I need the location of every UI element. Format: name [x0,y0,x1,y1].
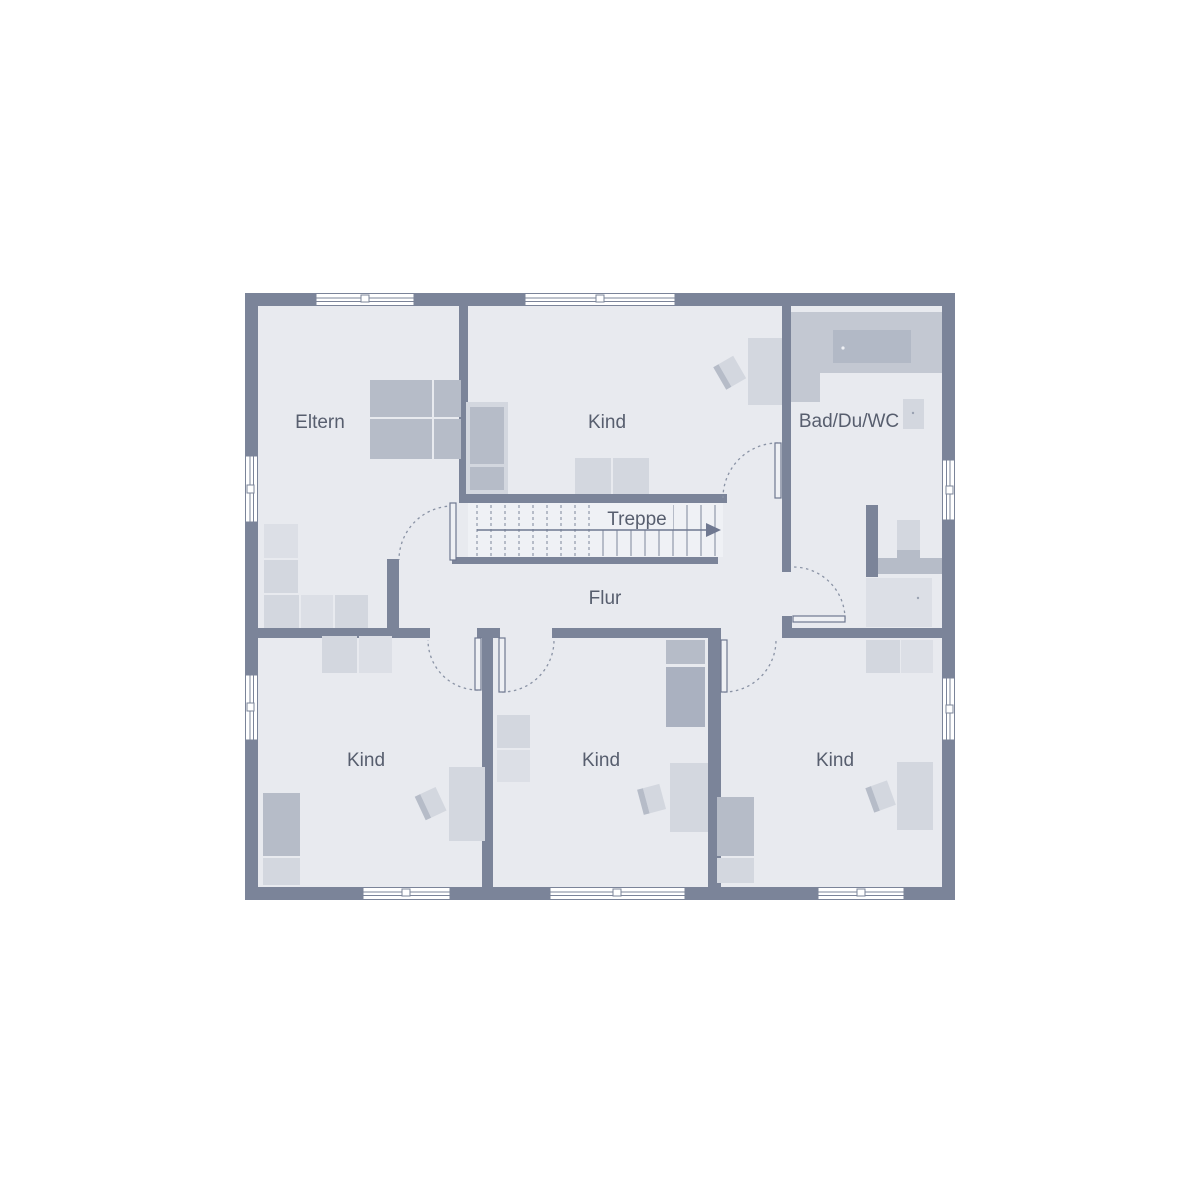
window-handle-icon [613,889,621,896]
wall-exterior-left [245,293,258,900]
wall-flur-south-1 [399,628,430,638]
room-label-treppe: Treppe [607,509,667,530]
bed-kindbl-body [263,793,300,856]
wall-flur-south-2 [477,628,500,638]
bed-eltern-pillow-top [434,380,461,417]
wall-kind-stairs [459,494,727,503]
bath-tile-platform-left [791,312,820,402]
bed-eltern-left-bottom [370,419,432,459]
window-handle-icon [946,486,953,494]
floor-plan-svg: Eltern Kind Bad/Du/WC Treppe Flur Kind K… [0,0,1200,1200]
window-right-bad [943,460,955,520]
door-kindbm-leaf [499,638,505,692]
window-handle-icon [402,889,410,896]
wardrobe-eltern-3 [264,595,299,628]
window-handle-icon [946,705,953,713]
window-handle-icon [247,485,254,493]
window-handle-icon [247,703,254,711]
wall-bad-west [782,306,791,572]
bathtub-drain-icon [841,346,844,349]
bed-kindbr-body [717,797,754,856]
bed-kindbm-pillow [666,640,705,664]
wardrobe-eltern-5 [335,595,368,628]
window-bottom-kindbm [550,888,685,900]
wall-bad-door-stub [782,616,792,628]
wardrobe-kindbr-1 [866,640,900,673]
window-bottom-kindbr [818,888,904,900]
room-label-eltern: Eltern [295,412,345,433]
wardrobe-kindbr-2 [901,640,933,673]
bath-platform [878,558,942,574]
wardrobe-eltern-2 [264,560,298,593]
bed-kindbl-foot [263,858,300,885]
wardrobe-eltern-1 [264,524,298,558]
wall-flur-south-4 [782,628,942,638]
bed-eltern-left-top [370,380,432,417]
window-left-kindbl [246,675,258,740]
wall-stair-rail [452,557,718,564]
desk-kindbm [670,763,708,832]
bed-kindtop-right [613,458,649,494]
room-label-kind-top: Kind [588,412,626,433]
wardrobe-kindtop-lower [470,467,504,490]
door-kindbr-leaf [721,640,727,692]
bed-kindbr-foot [717,858,754,883]
room-label-flur: Flur [589,588,622,609]
shower [866,578,932,627]
wall-exterior-right [942,293,955,900]
window-handle-icon [361,295,369,302]
shower-drain-icon [917,597,919,599]
wall-flur-west-stub [387,559,399,638]
wardrobe-eltern-4 [301,595,333,628]
wardrobe-kindbm-1 [497,715,530,748]
room-label-kind-br: Kind [816,750,854,771]
window-top-kind [525,294,675,306]
window-bottom-kindbl [363,888,450,900]
wardrobe-kindbm-2 [497,750,530,782]
door-kindtop-leaf [775,443,781,498]
bathtub [833,330,911,363]
toilet-base [897,550,920,558]
desk-kindtop [748,338,782,405]
bed-kindbm-body [666,667,705,727]
door-bad-leaf [793,616,845,622]
wall-kindbl-kindbm [482,638,493,887]
toilet [897,520,920,550]
floor-plan-page: Eltern Kind Bad/Du/WC Treppe Flur Kind K… [0,0,1200,1200]
window-left-eltern [246,456,258,522]
window-right-kindbr [943,678,955,740]
room-label-kind-bl: Kind [347,750,385,771]
sink-drain-icon [912,412,914,414]
bed-kindtop-left [575,458,611,494]
wardrobe-kindtop-upper [470,407,504,464]
dresser-kindbl-1 [322,636,357,673]
desk-kindbl [449,767,485,841]
window-handle-icon [596,295,604,302]
room-label-kind-bm: Kind [582,750,620,771]
window-top-eltern [316,294,414,306]
wall-bad-privacy [866,505,878,577]
door-kindbl-leaf [475,638,481,690]
window-handle-icon [857,889,865,896]
dresser-kindbl-2 [359,636,392,673]
bed-eltern-pillow-bottom [434,419,461,459]
door-eltern-leaf [450,503,456,560]
desk-kindbr [897,762,933,830]
room-label-bad: Bad/Du/WC [799,411,899,432]
wall-flur-south-3 [552,628,712,638]
